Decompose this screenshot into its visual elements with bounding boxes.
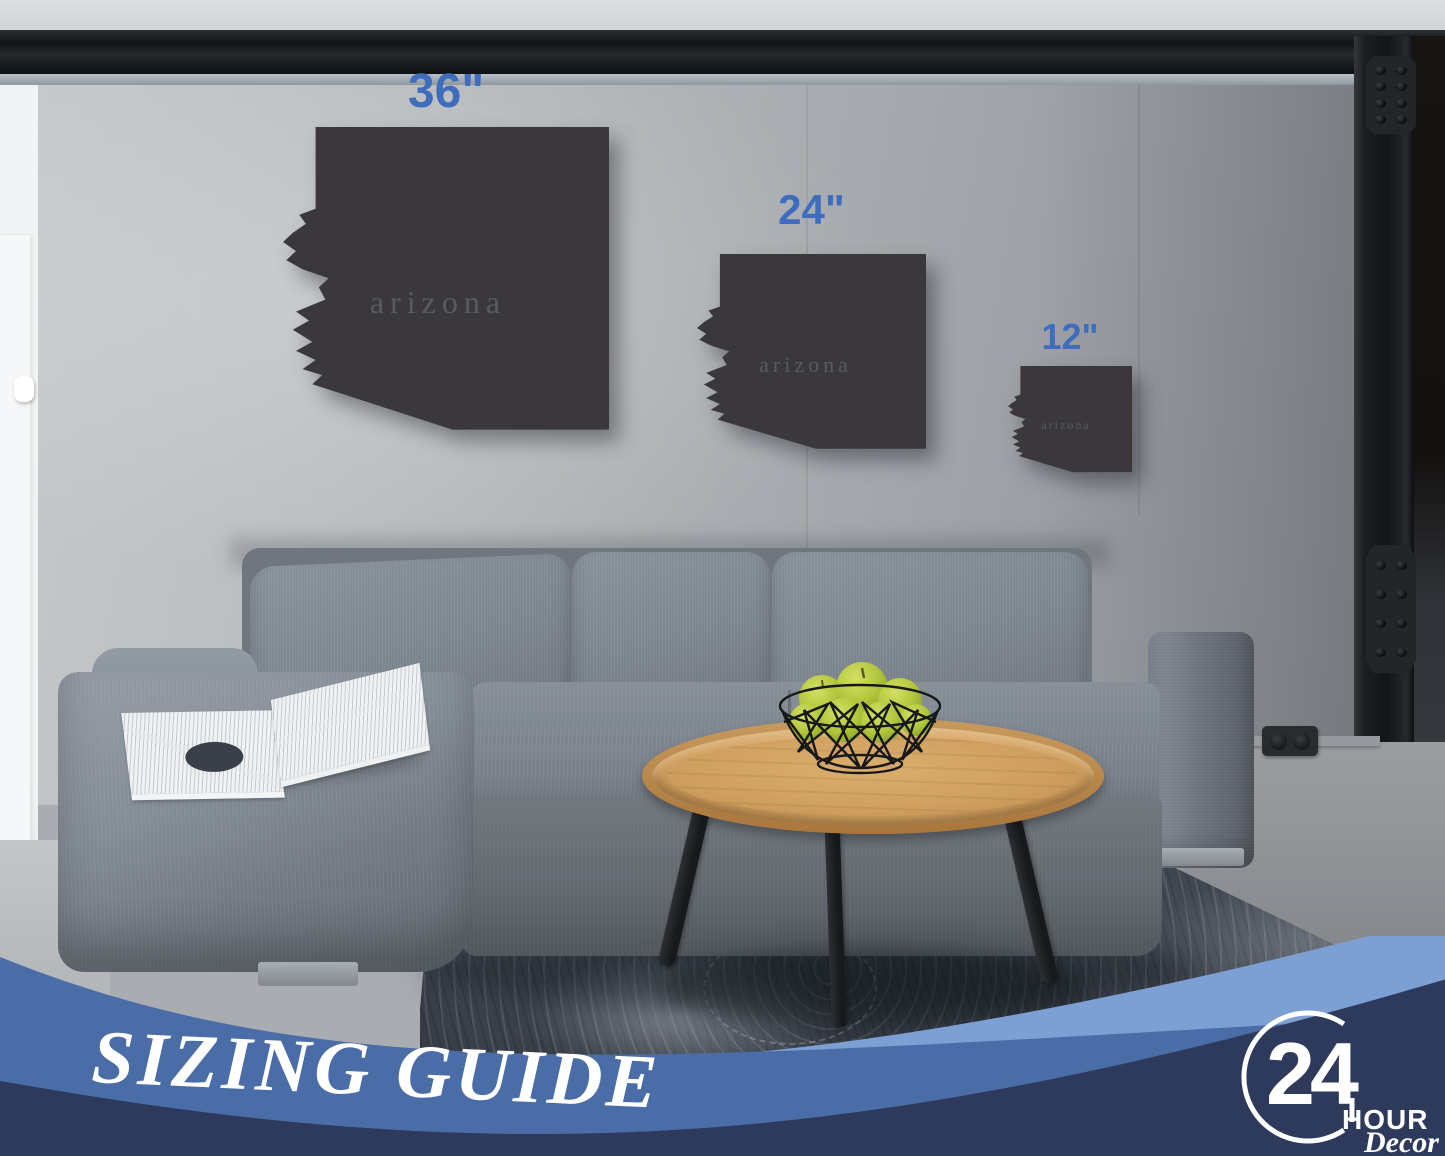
rivet — [1375, 115, 1386, 124]
steel-column — [1354, 36, 1414, 816]
wall-seam — [1138, 85, 1140, 515]
rivet — [1396, 115, 1407, 124]
rivet — [1396, 99, 1407, 108]
rivet — [1396, 648, 1407, 657]
state-name-24: arizona — [691, 352, 920, 378]
door-handle — [14, 376, 34, 402]
rivet — [1375, 561, 1386, 570]
ceiling-rail-beam — [0, 30, 1445, 74]
size-label-12: 12" — [1008, 316, 1132, 358]
rivet — [1375, 590, 1386, 599]
rivet — [1396, 561, 1407, 570]
rivet — [1375, 82, 1386, 91]
state-name-36: arizona — [275, 284, 601, 321]
power-outlet — [1262, 726, 1318, 756]
white-door — [0, 235, 30, 845]
rivet — [1375, 648, 1386, 657]
rivet — [1396, 66, 1407, 75]
24-hour-decor-logo: 24 HOUR Decor — [1216, 1002, 1444, 1154]
sofa-foot — [1158, 848, 1244, 866]
rivet — [1396, 82, 1407, 91]
ceiling-rail-edge — [0, 74, 1445, 85]
state-name-12: arizona — [1004, 418, 1128, 433]
fruit-basket — [770, 660, 954, 780]
rivet — [1396, 619, 1407, 628]
rivet — [1375, 619, 1386, 628]
rivet — [1396, 590, 1407, 599]
rivet — [1375, 99, 1386, 108]
sofa-right-armrest — [1148, 632, 1254, 868]
logo-decor-text: Decor — [1363, 1126, 1439, 1154]
rivet-plate — [1366, 56, 1416, 134]
rivet — [1375, 66, 1386, 75]
socket — [1293, 733, 1310, 750]
sizing-guide-graphic: 36" arizona 24" arizona 12" arizona SIZI… — [0, 0, 1445, 1156]
size-label-24: 24" — [697, 186, 926, 234]
size-label-36: 36" — [283, 64, 609, 119]
rivet-plate — [1366, 545, 1416, 673]
socket — [1270, 733, 1287, 750]
